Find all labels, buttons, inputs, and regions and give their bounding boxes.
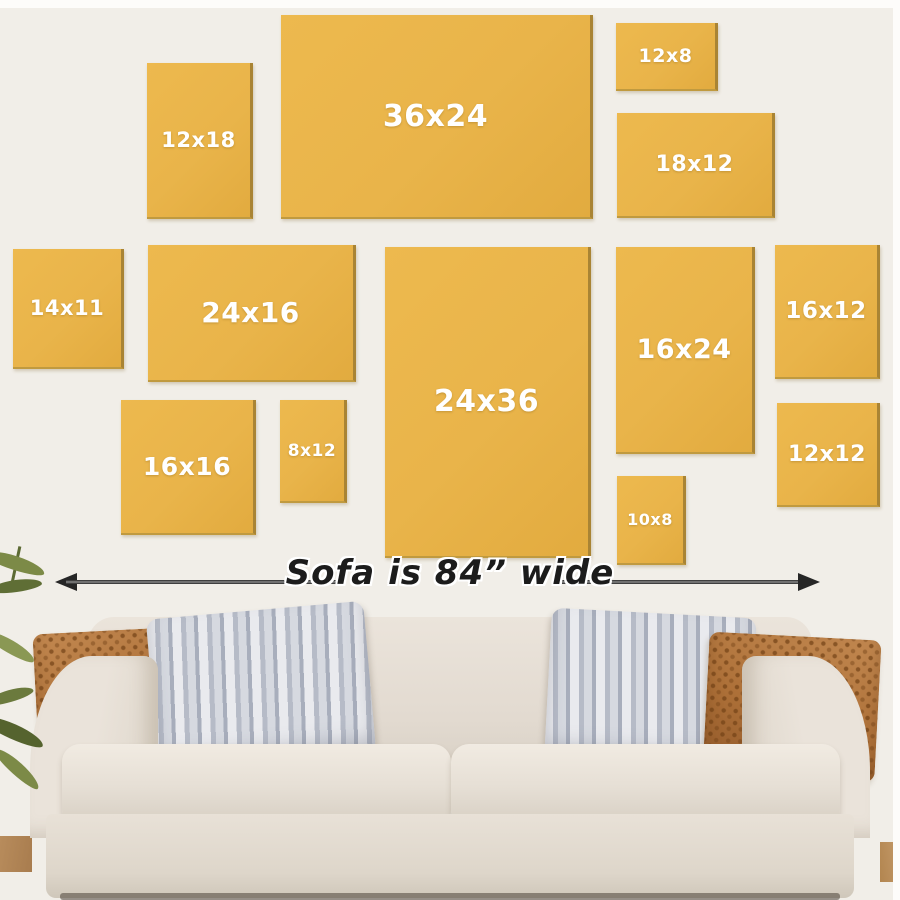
frame-36x24: 36x24 — [281, 15, 593, 219]
frame-size-label: 12x8 — [639, 45, 693, 67]
frame-16x16: 16x16 — [121, 400, 256, 535]
image-border-right — [893, 0, 900, 900]
frame-size-label: 24x16 — [201, 296, 300, 329]
frame-24x36: 24x36 — [385, 247, 591, 558]
frame-24x16: 24x16 — [148, 245, 356, 382]
frame-size-label: 16x24 — [636, 334, 731, 365]
frame-8x12: 8x12 — [280, 400, 347, 503]
frame-12x18: 12x18 — [147, 63, 253, 219]
frame-size-label: 36x24 — [383, 99, 488, 134]
size-guide-infographic: 12x18 36x24 12x8 18x12 14x11 24x16 16x16… — [0, 0, 900, 900]
arrow-right-icon — [798, 573, 820, 591]
frame-10x8: 10x8 — [617, 476, 686, 565]
image-border-top — [0, 0, 900, 8]
wood-floor-left — [0, 836, 32, 872]
plant-leaf — [0, 684, 35, 709]
frame-12x12: 12x12 — [777, 403, 880, 507]
sofa-width-caption: Sofa is 84” wide — [286, 553, 615, 593]
frame-16x24: 16x24 — [616, 247, 755, 454]
frame-size-label: 18x12 — [656, 152, 734, 177]
frame-12x8: 12x8 — [616, 23, 718, 91]
sofa-seat-cushion-right — [451, 744, 840, 822]
frame-size-label: 10x8 — [627, 510, 673, 529]
sofa-base — [46, 814, 854, 898]
frame-size-label: 12x18 — [161, 128, 236, 152]
sofa-seat-cushion-left — [62, 744, 451, 822]
frame-size-label: 8x12 — [288, 441, 336, 461]
frame-size-label: 24x36 — [434, 384, 539, 419]
frame-18x12: 18x12 — [617, 113, 775, 218]
frame-size-label: 14x11 — [30, 296, 105, 320]
plant-leaf — [0, 576, 43, 595]
plant-leaf — [0, 627, 37, 666]
plant-leaf — [0, 547, 47, 579]
frame-size-label: 16x16 — [143, 452, 231, 481]
frame-size-label: 12x12 — [788, 442, 866, 467]
frame-size-label: 16x12 — [785, 298, 866, 324]
frame-14x11: 14x11 — [13, 249, 124, 369]
frame-16x12: 16x12 — [775, 245, 880, 379]
sofa-shadow — [60, 893, 840, 900]
